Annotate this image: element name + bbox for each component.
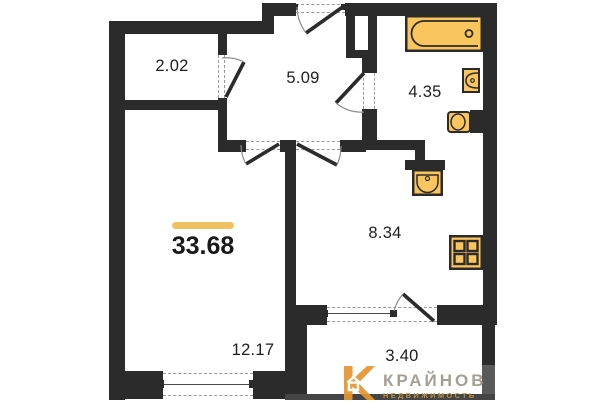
kitchen-door-leaf — [297, 144, 337, 165]
door-swing-arc — [336, 103, 364, 112]
sink-icon — [462, 68, 480, 93]
toilet-icon — [447, 110, 483, 134]
accent-bar — [172, 222, 234, 229]
total-area-block: 33.68 — [163, 222, 243, 262]
balcony-door-leaf — [403, 294, 434, 321]
room-area-kitchen: 8.34 — [354, 224, 416, 243]
brand-logo-icon — [344, 366, 375, 400]
brand-name: КРАЙНОВ — [383, 373, 487, 388]
room-area-hallway: 5.09 — [272, 69, 334, 88]
door-swing-arc — [337, 146, 341, 165]
door-swing-arc — [241, 145, 246, 164]
total-area-value: 33.68 — [163, 232, 243, 261]
entrance-door-leaf — [306, 6, 344, 33]
door-swing-overlay — [0, 0, 605, 403]
closet-door-leaf — [226, 62, 244, 97]
room-area-balcony: 3.40 — [371, 347, 433, 366]
bathroom-door-leaf — [336, 73, 364, 103]
door-swing-arc — [394, 294, 403, 311]
room-area-bathroom: 4.35 — [394, 83, 456, 102]
washbasin-icon — [412, 169, 443, 196]
brand-watermark: КРАЙНОВ НЕДВИЖИМОСТЬ — [344, 366, 487, 400]
floor-plan-canvas: 2.02 5.09 4.35 8.34 12.17 3.40 33.68 КРА… — [0, 0, 605, 403]
door-swing-arc — [297, 7, 306, 33]
room-area-living-room: 12.17 — [220, 341, 286, 360]
room-area-closet: 2.02 — [141, 57, 203, 76]
stove-icon — [449, 235, 483, 270]
door-swing-arc — [222, 58, 244, 62]
brand-tagline: НЕДВИЖИМОСТЬ — [383, 391, 487, 400]
bathtub-icon — [405, 15, 483, 52]
living-room-door-leaf — [246, 144, 279, 164]
